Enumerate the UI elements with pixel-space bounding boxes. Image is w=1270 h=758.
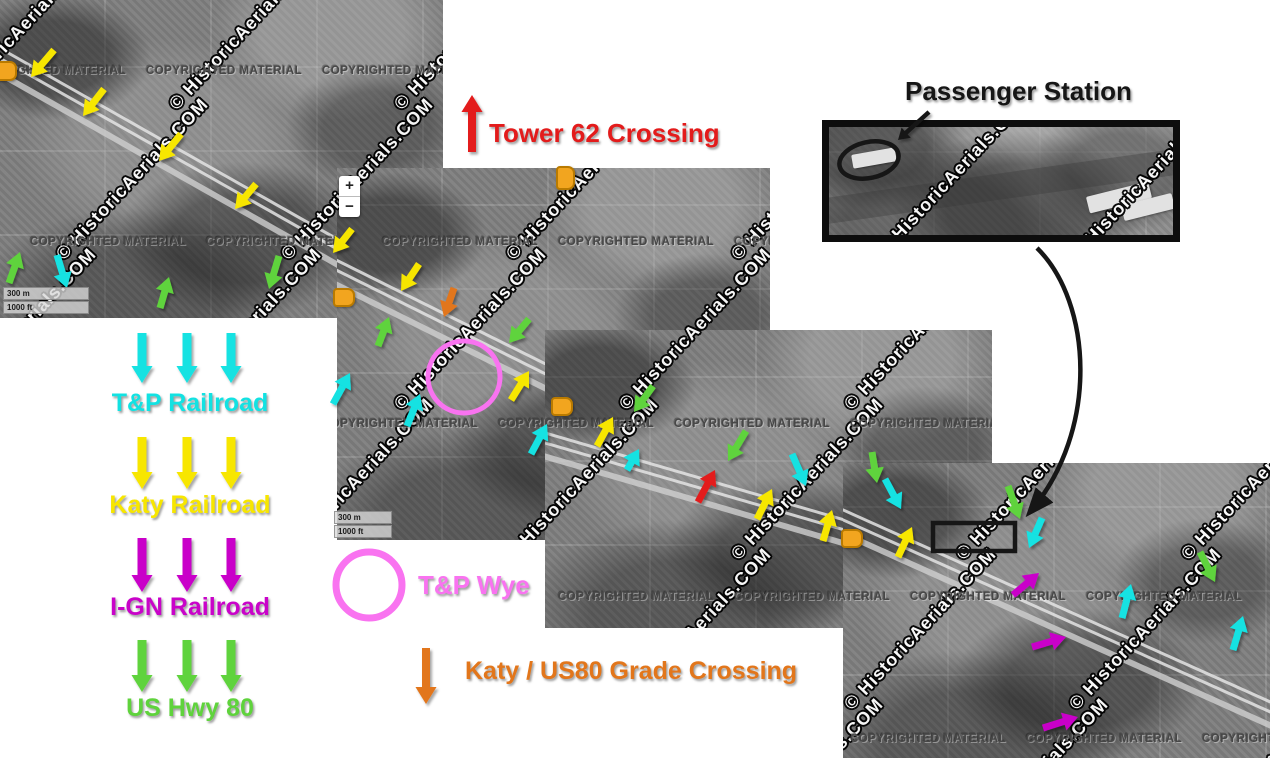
cyan-annotation-arrow [131,366,152,383]
cyan-annotation-arrow [220,366,241,383]
copyright-watermark: COPYRIGHTED MATERIAL [674,418,830,430]
map-place-marker [841,529,863,548]
passenger-station-inset: © HistoricAerials.COM© HistoricAerials.C… [822,120,1180,242]
map-scale-bar: 300 m 1000 ft [3,287,89,315]
map-scale-bar: 300 m 1000 ft [334,511,392,539]
copyright-watermark: COPYRIGHTED MATERIAL [850,418,992,430]
scale-meters: 300 m [334,511,392,524]
orange-annotation-arrow [415,687,436,704]
copyright-watermark: COPYRIGHTED MATERIAL [322,65,443,77]
copyright-watermark: COPYRIGHTED MATERIAL [910,591,1066,603]
copyright-watermark: COPYRIGHTED MATERIAL [850,733,1006,745]
yellow-annotation-arrow [131,472,152,489]
scale-feet: 1000 ft [3,301,89,314]
copyright-watermark: COPYRIGHTED MATERIAL [843,591,890,603]
aerial-photo-panel-southeast: © HistoricAerials.COM© HistoricAerials.C… [843,463,1270,758]
historicaerials-watermark: © HistoricAerials.COM [390,0,443,114]
copyright-watermark: COPYRIGHTED MATERIAL [558,236,714,248]
magenta-annotation-arrow [176,575,197,592]
historicaerials-watermark: © HistoricAerials.COM [952,463,1113,564]
cyan-annotation-arrow [176,366,197,383]
scale-meters: 300 m [3,287,89,300]
magenta-annotation-arrow [220,575,241,592]
yellow-annotation-arrow [220,472,241,489]
station-building [851,147,897,168]
copyright-watermark: COPYRIGHTED MATERIAL [146,65,302,77]
zoom-out-button[interactable]: − [339,197,360,217]
passenger-station-label: Passenger Station [905,76,1132,107]
legend-label-tp-railroad: T&P Railroad [85,389,295,418]
historicaerials-watermark: © HistoricAerials.COM [840,330,992,414]
copyright-watermark: COPYRIGHTED MATERIAL [30,236,186,248]
yellow-annotation-arrow [176,472,197,489]
magenta-annotation-arrow [131,575,152,592]
historicaerials-watermark: © HistoricAerials.COM [165,244,326,318]
copyright-watermark: COPYRIGHTED MATERIAL [1086,591,1242,603]
legend-label-katy-railroad: Katy Railroad [85,491,295,520]
copyright-watermark: COPYRIGHTED MATERIAL [558,591,714,603]
zoom-in-button[interactable]: + [339,176,360,196]
green-annotation-arrow [176,675,197,692]
wye-label: T&P Wye [418,570,530,601]
red-annotation-arrow [461,95,482,112]
copyright-watermark: COPYRIGHTED MATERIAL [1202,733,1270,745]
wye-legend-circle [336,552,402,618]
legend-label-ign-railroad: I-GN Railroad [85,593,295,622]
map-place-marker [333,288,355,307]
green-annotation-arrow [131,675,152,692]
historicaerials-watermark: © HistoricAerials.COM [1177,463,1270,564]
map-zoom-control: + − [339,176,360,217]
legend-label-us-hwy-80: US Hwy 80 [85,694,295,723]
copyright-watermark: COPYRIGHTED MATERIAL [337,418,478,430]
copyright-watermark: COPYRIGHTED MATERIAL [1026,733,1182,745]
annotated-aerial-map: © HistoricAerials.COM© HistoricAerials.C… [0,0,1270,758]
historicaerials-watermark: © HistoricAerials.COM [390,244,551,414]
scale-feet: 1000 ft [334,525,392,538]
historicaerials-watermark: © HistoricAerials.COM [502,168,663,264]
historicaerials-watermark: © HistoricAerials.COM [165,0,326,114]
map-place-marker [556,166,575,190]
map-place-marker [0,61,17,81]
copyright-watermark: COPYRIGHTED MATERIAL [382,236,538,248]
grade-crossing-label: Katy / US80 Grade Crossing [465,657,797,686]
copyright-watermark: COPYRIGHTED MATERIAL [545,418,654,430]
historicaerials-watermark: © HistoricAerials.COM [615,544,776,628]
copyright-watermark: COPYRIGHTED MATERIAL [0,65,126,77]
historicaerials-watermark: © HistoricAerials.COM [952,694,1113,758]
tower-crossing-label: Tower 62 Crossing [489,118,720,149]
green-annotation-arrow [220,675,241,692]
copyright-watermark: COPYRIGHTED MATERIAL [734,236,770,248]
map-place-marker [551,397,573,416]
